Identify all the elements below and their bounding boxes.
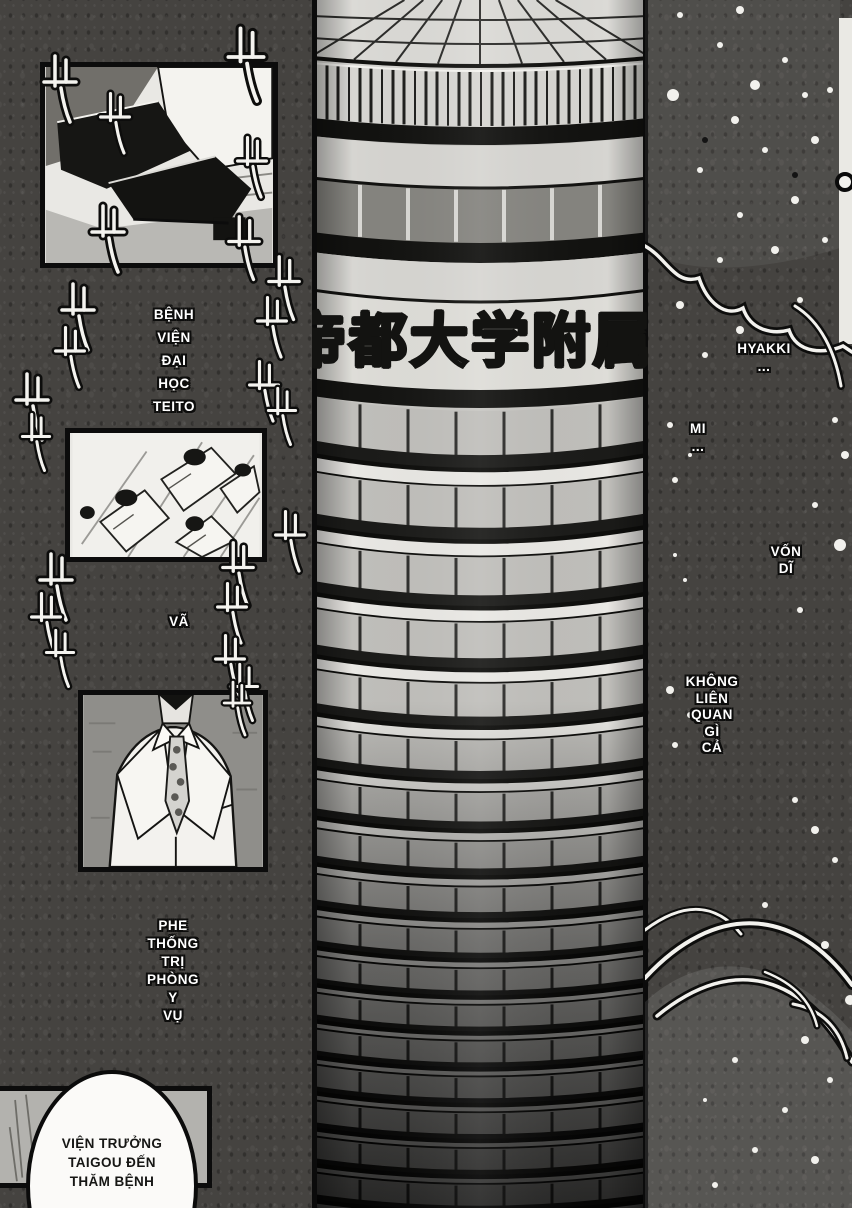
walking-feet-drawing xyxy=(45,67,273,263)
caption-line: ... xyxy=(758,358,771,376)
caption-va: VÃ xyxy=(169,613,189,631)
caption-line: TRỊ xyxy=(161,953,184,971)
caption-mi: MI ... xyxy=(690,420,706,456)
building-sign: 帝都大学附属病 xyxy=(312,294,648,378)
suit-torso-drawing xyxy=(83,695,263,867)
right-column-decor xyxy=(645,0,852,1208)
hospital-tower-art xyxy=(312,0,648,1208)
caption-line: VIỆN xyxy=(157,326,191,349)
caption-line: VÃ xyxy=(169,613,189,631)
caption-line: Y xyxy=(168,989,178,1007)
caption-line: TEITO xyxy=(153,395,195,418)
caption-line: VỐN xyxy=(771,544,802,561)
caption-benh-vien-dai-hoc-teito: BỆNH VIỆN ĐẠI HỌC TEITO xyxy=(153,303,195,418)
caption-line: DĨ xyxy=(779,561,794,578)
caption-line: LIÊN xyxy=(696,691,729,708)
caption-line: PHÒNG xyxy=(147,971,199,989)
caption-line: CẢ xyxy=(702,740,723,757)
panel-walking-feet xyxy=(40,62,278,268)
caption-hyakki: HYAKKI ... xyxy=(737,340,791,376)
caption-line: THỐNG xyxy=(147,935,198,953)
caption-von-di: VỐN DĨ xyxy=(771,544,802,577)
speech-line: TAIGOU ĐẾN xyxy=(62,1153,163,1172)
bowing-crowd-drawing xyxy=(70,433,262,557)
hospital-tower-illustration xyxy=(312,0,648,1208)
speech-bubble-text: VIỆN TRƯỞNG TAIGOU ĐẾN THĂM BỆNH xyxy=(62,1134,163,1191)
panel-suit-torso xyxy=(78,690,268,872)
caption-line: PHE xyxy=(158,917,187,935)
caption-line: QUAN xyxy=(691,707,733,724)
caption-khong-lien-quan-gi-ca: KHÔNG LIÊN QUAN GÌ CẢ xyxy=(686,674,739,757)
caption-line: ĐẠI xyxy=(162,349,187,372)
building-sign-text: 帝都大学附属病 xyxy=(312,294,648,378)
caption-line: HỌC xyxy=(158,372,190,395)
manga-page: 帝都大学附属病 xyxy=(0,0,852,1208)
panel-bowing-crowd xyxy=(65,428,267,562)
page-edge-strip xyxy=(839,18,852,344)
caption-line: HYAKKI xyxy=(737,340,791,358)
caption-line: VỤ xyxy=(163,1007,183,1025)
caption-line: BỆNH xyxy=(154,303,194,326)
caption-line: KHÔNG xyxy=(686,674,739,691)
caption-line: GÌ xyxy=(704,724,719,741)
caption-line: ... xyxy=(692,438,705,456)
speech-line: VIỆN TRƯỞNG xyxy=(62,1134,163,1153)
caption-line: MI xyxy=(690,420,706,438)
speech-line: THĂM BỆNH xyxy=(62,1172,163,1191)
caption-phe-thong-tri-phong-y-vu: PHE THỐNG TRỊ PHÒNG Y VỤ xyxy=(147,917,199,1025)
